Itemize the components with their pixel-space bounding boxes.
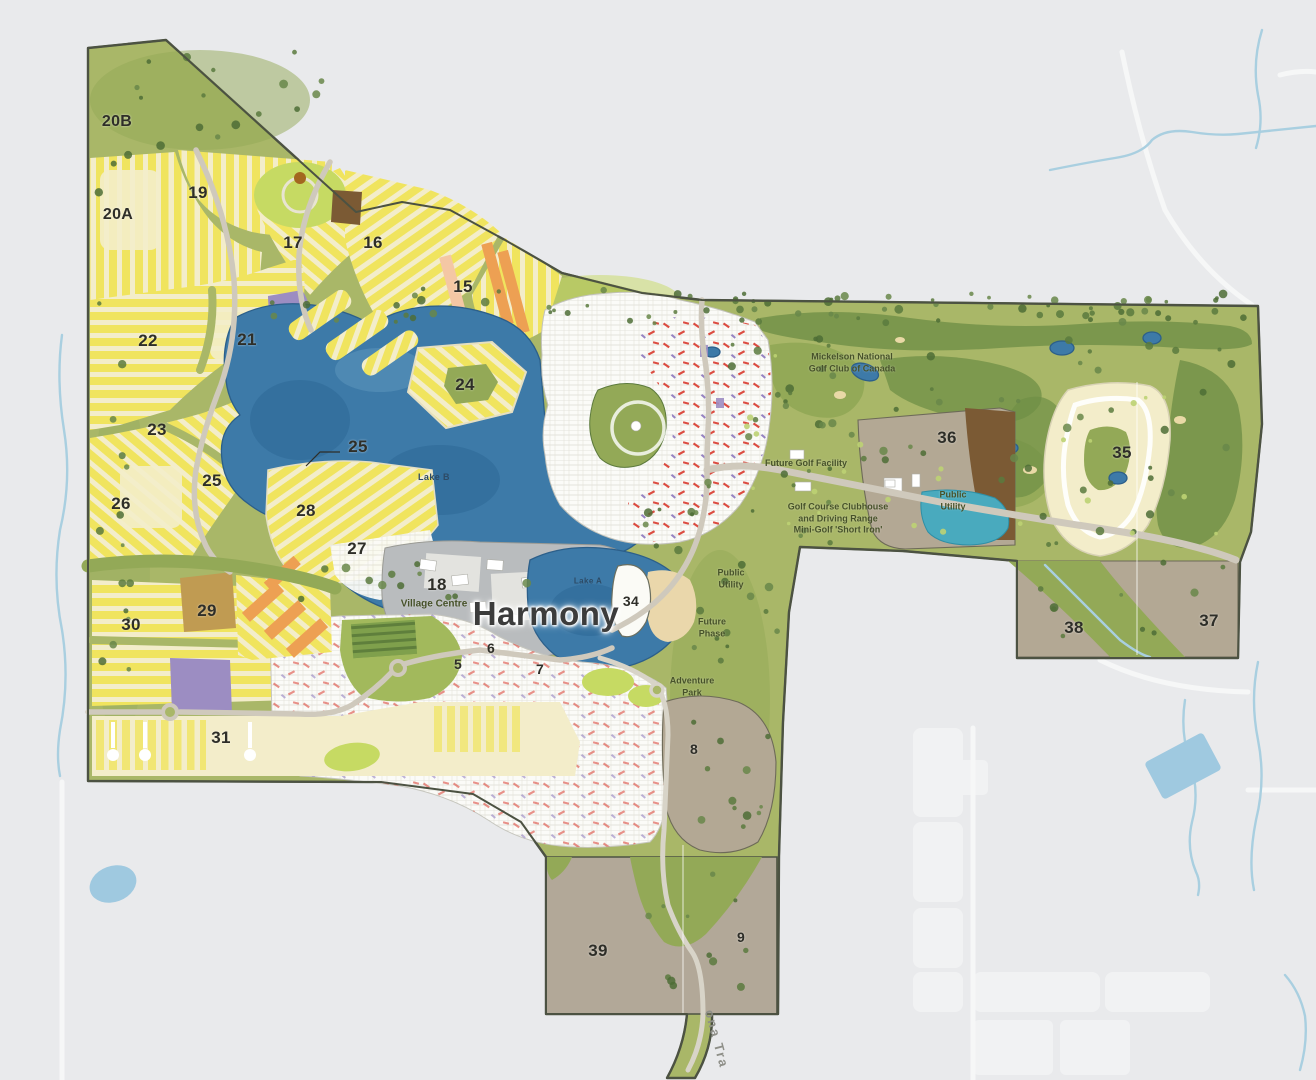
estate-subdivision-north	[541, 292, 772, 544]
master-plan-map: 20B1920A17161522212423252526282718342930…	[0, 0, 1316, 1080]
parcels-38-37	[1008, 561, 1238, 657]
map-artwork	[0, 0, 1316, 1080]
parcel-8-area	[662, 696, 776, 853]
purple-parcel-south	[170, 658, 232, 714]
school-site-north	[331, 190, 362, 225]
